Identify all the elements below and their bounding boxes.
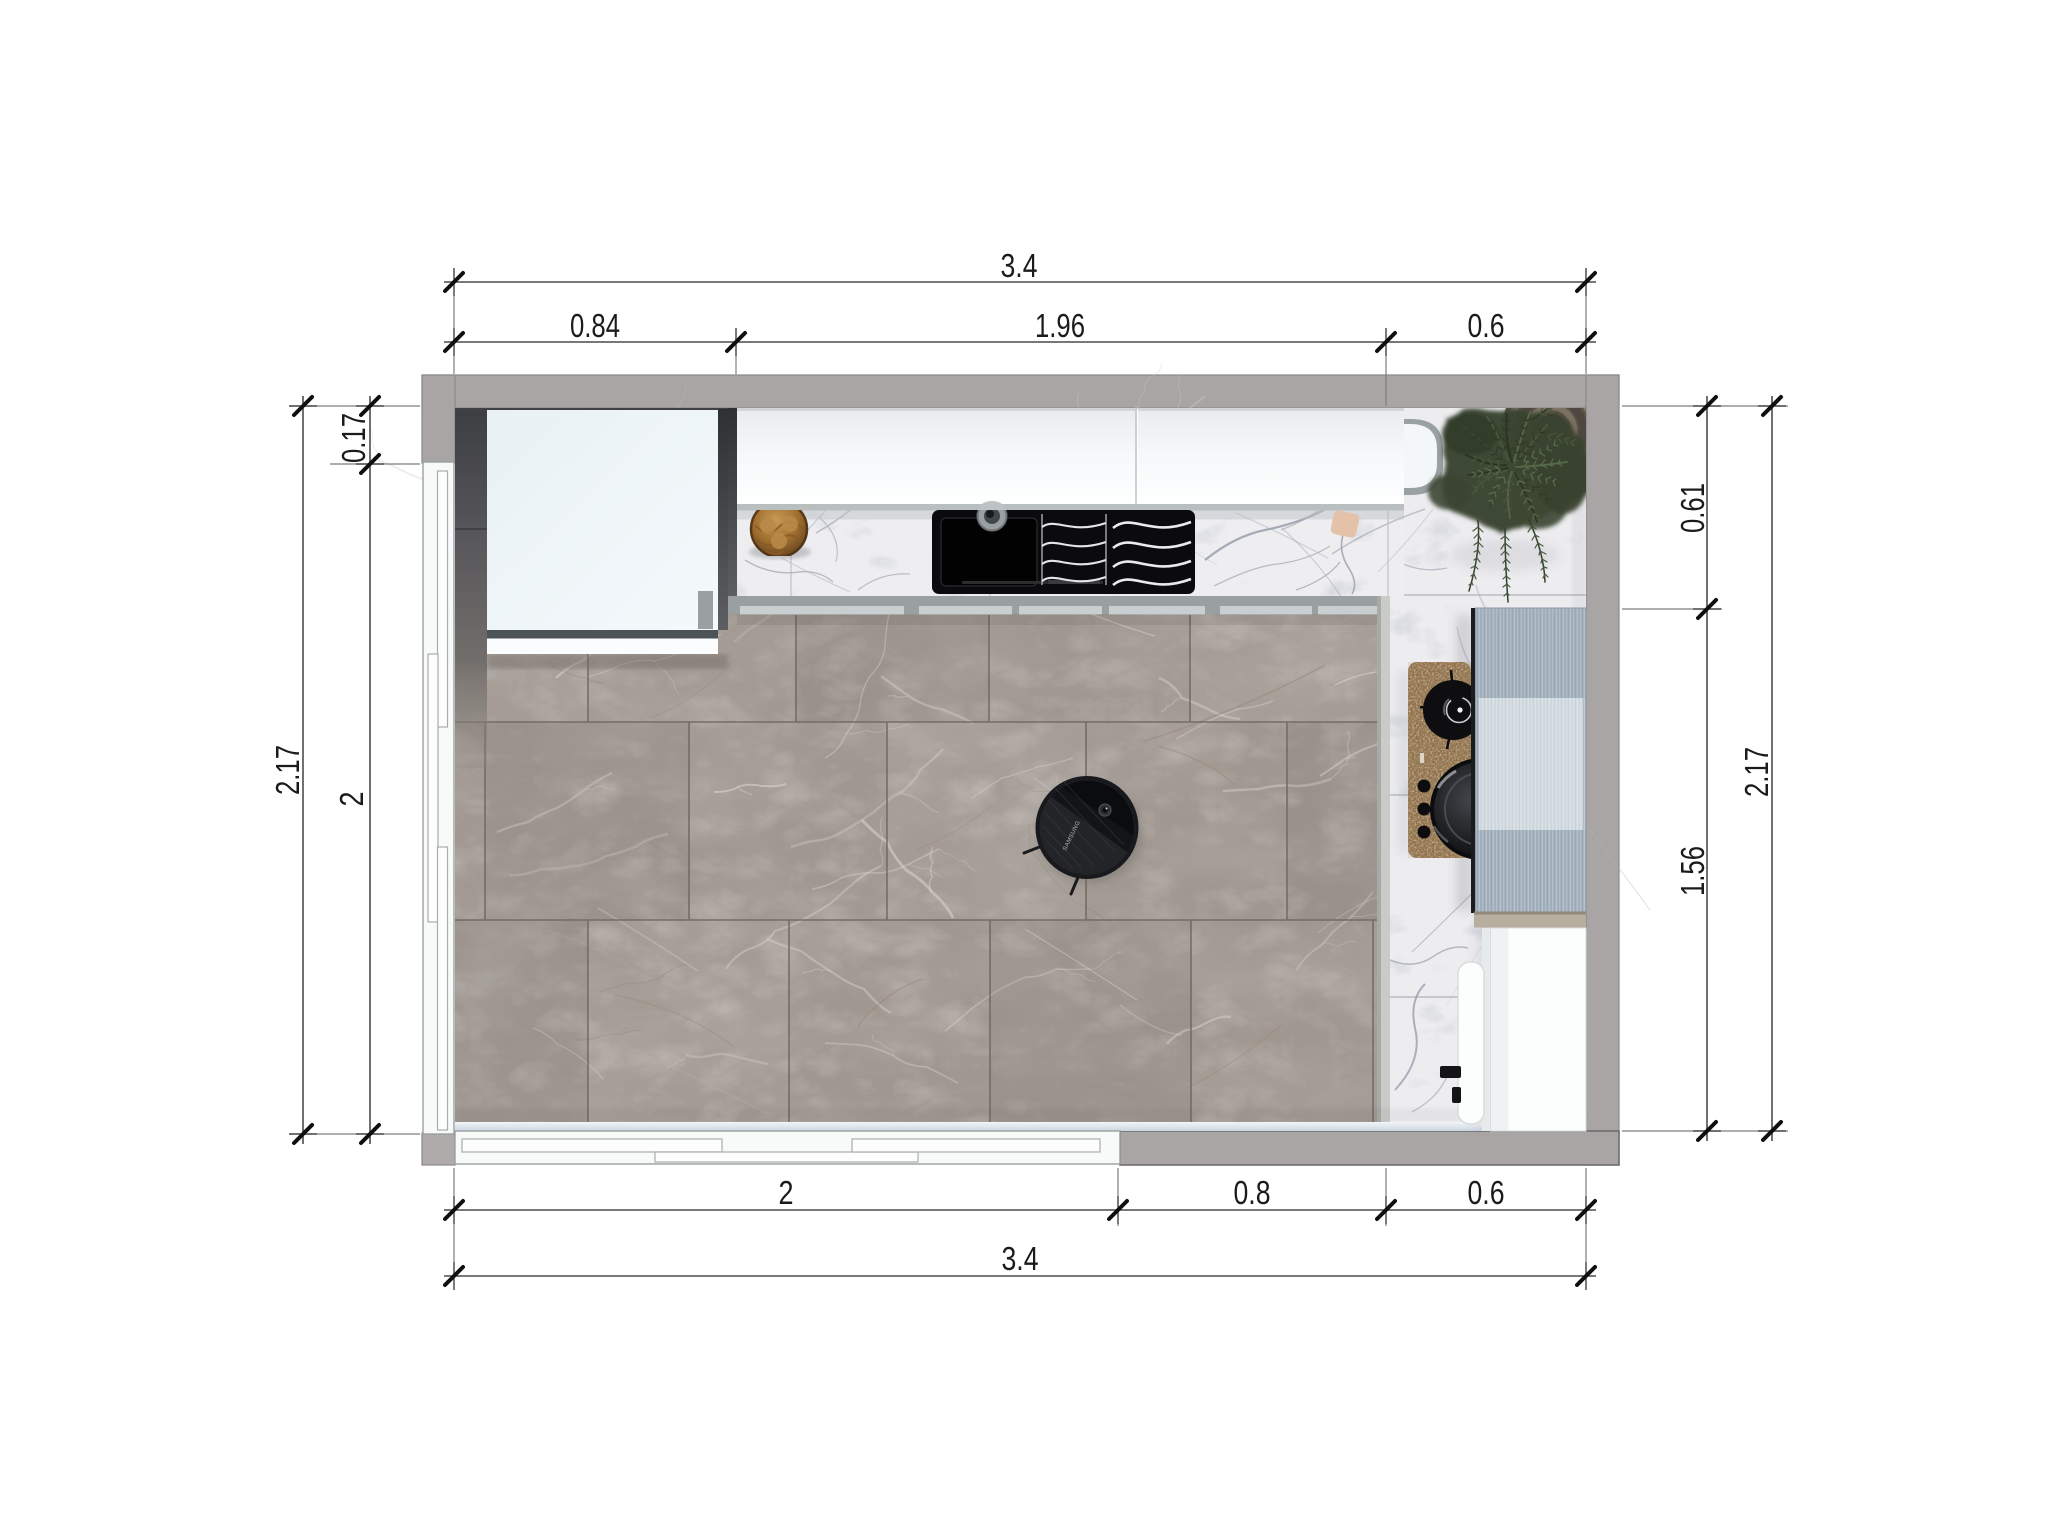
svg-text:0.6: 0.6 (1468, 307, 1505, 344)
svg-text:0.17: 0.17 (335, 413, 372, 463)
svg-text:2: 2 (779, 1174, 794, 1211)
svg-text:3.4: 3.4 (1002, 1240, 1039, 1277)
svg-text:1.96: 1.96 (1035, 307, 1085, 344)
svg-text:3.4: 3.4 (1001, 247, 1038, 284)
svg-text:0.6: 0.6 (1468, 1174, 1505, 1211)
svg-text:0.84: 0.84 (570, 307, 620, 344)
svg-text:0.8: 0.8 (1234, 1174, 1271, 1211)
svg-text:1.56: 1.56 (1674, 846, 1711, 896)
svg-text:2.17: 2.17 (1738, 747, 1775, 797)
svg-text:2: 2 (333, 792, 370, 807)
svg-text:0.61: 0.61 (1674, 483, 1711, 533)
svg-text:2.17: 2.17 (269, 745, 306, 795)
